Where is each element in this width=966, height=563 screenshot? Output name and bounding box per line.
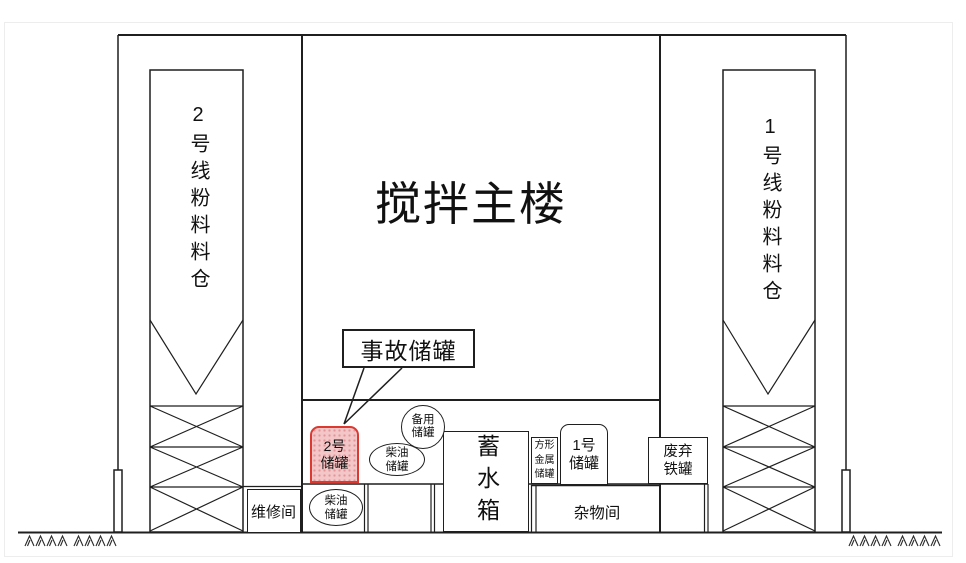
diesel-tank-lower: 柴油 储罐 bbox=[309, 489, 363, 526]
scrap-iron-tank: 废弃 铁罐 bbox=[648, 437, 708, 484]
accident-tank-label: 2号 bbox=[312, 438, 357, 455]
water-tank-label: 蓄水箱 bbox=[474, 434, 499, 530]
right-silo-label: 1号线粉料料仓 bbox=[755, 106, 781, 316]
repair-room-label: 维修间 bbox=[251, 501, 296, 522]
plant-elevation-diagram: 2号线粉料料仓 1号线粉料料仓 搅拌主楼 蓄水箱 方形 金属 储罐 1号 储罐 … bbox=[0, 0, 966, 563]
water-tank: 蓄水箱 bbox=[443, 431, 529, 532]
left-silo-truss bbox=[150, 406, 243, 531]
left-silo-hopper bbox=[150, 320, 243, 394]
tank-no1: 1号 储罐 bbox=[560, 424, 608, 485]
accident-tank-callout-label: 事故储罐 bbox=[361, 332, 457, 366]
accident-tank: 2号 储罐 bbox=[310, 426, 359, 483]
callout-pointer bbox=[344, 368, 402, 424]
square-metal-tank: 方形 金属 储罐 bbox=[531, 437, 558, 484]
right-base-post bbox=[842, 470, 850, 532]
right-silo-hopper bbox=[723, 320, 815, 394]
diesel-tank-lower-label: 柴油 bbox=[310, 494, 362, 508]
square-metal-tank-label: 方形 bbox=[532, 439, 557, 454]
left-silo-label: 2号线粉料料仓 bbox=[183, 99, 209, 299]
backup-tank: 备用 储罐 bbox=[401, 405, 445, 449]
repair-room: 维修间 bbox=[247, 489, 301, 532]
backup-tank-label: 备用 bbox=[402, 414, 444, 428]
left-base-post bbox=[114, 470, 122, 532]
sundry-room-label: 杂物间 bbox=[540, 501, 654, 523]
ground-hatching bbox=[25, 536, 940, 546]
main-building-label: 搅拌主楼 bbox=[340, 168, 602, 234]
tank-no1-label: 1号 bbox=[561, 437, 607, 455]
scrap-iron-tank-label: 废弃 bbox=[649, 443, 707, 461]
accident-tank-callout: 事故储罐 bbox=[342, 329, 475, 368]
right-silo-truss bbox=[723, 406, 815, 531]
